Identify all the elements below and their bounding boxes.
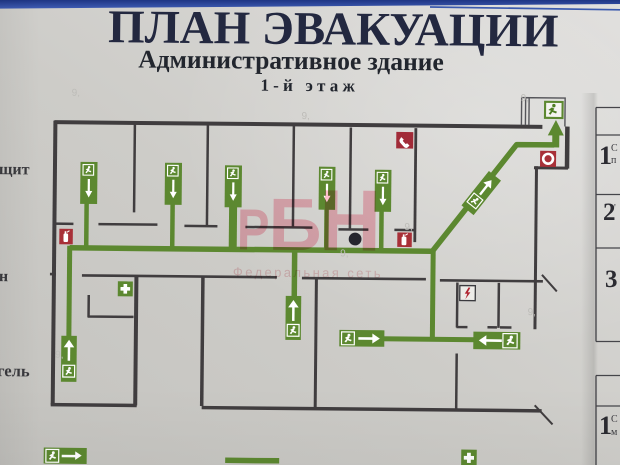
svg-text:Н: Н [319,173,382,270]
svg-text:1-й этаж: 1-й этаж [260,76,359,96]
svg-text:': ' [614,203,616,214]
svg-text:Б: Б [268,183,322,267]
svg-text:9,: 9, [301,111,309,122]
svg-text:Федеральная сеть: Федеральная сеть [233,264,383,280]
svg-text:9,: 9, [404,222,412,233]
svg-text:9,: 9, [521,93,529,104]
svg-text:9,: 9, [55,350,63,361]
svg-text:С: С [611,143,618,154]
svg-text:9,: 9, [528,307,536,318]
svg-text:Р: Р [237,198,270,262]
svg-text:9,: 9, [72,88,80,99]
svg-text:Административное здание: Административное здание [138,44,444,76]
svg-text:п: п [611,155,617,166]
svg-text:3: 3 [605,266,618,293]
